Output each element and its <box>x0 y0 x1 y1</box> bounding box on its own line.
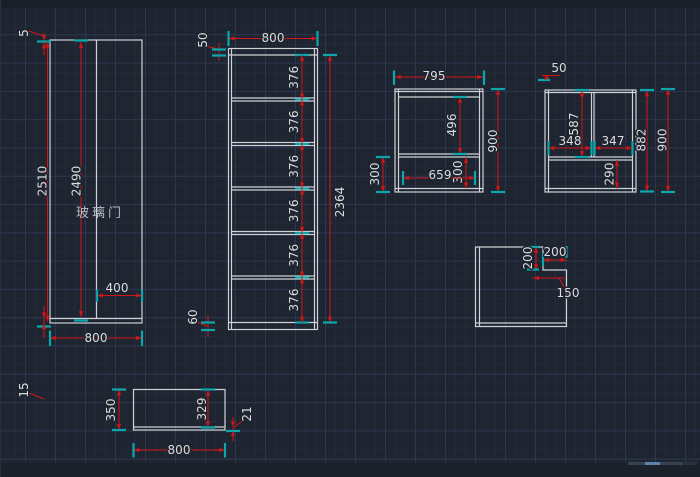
upper-height-dim-text[interactable]: 587 <box>567 113 581 136</box>
width-dim-text[interactable]: 800 <box>262 31 285 45</box>
bottom-gap-dim-text[interactable]: 15 <box>17 382 31 397</box>
cabinet-front-view[interactable]: 376 376 376 376 376 376 2364 800 50 60 <box>186 31 347 337</box>
door-width-dim-text[interactable]: 400 <box>106 281 129 295</box>
right-width-dim-text[interactable]: 347 <box>602 134 625 148</box>
height-dim-text[interactable]: 900 <box>656 129 670 152</box>
panel-outline[interactable] <box>134 390 226 431</box>
width-dim-text[interactable]: 800 <box>168 443 191 457</box>
side-view-b[interactable]: 50 587 348 347 882 900 290 <box>538 61 675 192</box>
inner-height-dim-text[interactable]: 882 <box>635 129 649 152</box>
height-dim-text[interactable]: 900 <box>486 130 500 153</box>
top-panel-dim-text[interactable]: 50 <box>196 32 210 47</box>
depth-dim-text[interactable]: 350 <box>104 399 118 422</box>
left-height-dim-text[interactable]: 300 <box>368 163 382 186</box>
glass-door-front-view[interactable]: 5 2510 2490 玻璃门 400 15 800 <box>17 29 142 399</box>
left-width-dim-text[interactable]: 348 <box>559 134 582 148</box>
leader-line[interactable] <box>29 31 44 36</box>
notch-width-dim-text[interactable]: 200 <box>544 245 567 259</box>
section-dim-text[interactable]: 376 <box>287 155 301 178</box>
lower-height-dim-text[interactable]: 300 <box>451 161 465 184</box>
cad-canvas[interactable]: 5 2510 2490 玻璃门 400 15 800 <box>0 0 700 477</box>
inner-depth-dim-text[interactable]: 329 <box>195 398 209 421</box>
top-panel-view[interactable]: 350 329 21 800 <box>104 390 254 458</box>
arrowhead <box>42 43 46 48</box>
width-dim-text[interactable]: 800 <box>85 331 108 345</box>
offset-dim-text[interactable]: 150 <box>557 286 580 300</box>
inner-height-dim-text[interactable]: 2490 <box>70 166 84 197</box>
drawing-layer: 5 2510 2490 玻璃门 400 15 800 <box>0 0 700 477</box>
total-height-dim-text[interactable]: 2364 <box>333 187 347 218</box>
top-gap-dim-text[interactable]: 5 <box>17 29 31 37</box>
section-dim-text[interactable]: 376 <box>287 244 301 267</box>
top-dim-text[interactable]: 50 <box>551 61 566 75</box>
section-dim-text[interactable]: 376 <box>287 66 301 89</box>
lower-height-dim-text[interactable]: 290 <box>603 163 617 186</box>
section-dim-text[interactable]: 376 <box>287 289 301 312</box>
arrowhead <box>42 35 46 40</box>
notch-depth-dim-text[interactable]: 200 <box>521 247 535 270</box>
section-dim-text[interactable]: 376 <box>287 199 301 222</box>
side-view-a[interactable]: 795 900 496 300 659 300 <box>368 69 505 192</box>
glass-door-label[interactable]: 玻璃门 <box>76 206 124 221</box>
overall-height-dim-text[interactable]: 2510 <box>36 166 50 197</box>
leader-line[interactable] <box>29 393 44 399</box>
upper-height-dim-text[interactable]: 496 <box>445 114 459 137</box>
arrowhead <box>231 422 235 427</box>
thickness-dim-text[interactable]: 21 <box>240 406 254 421</box>
width-dim-text[interactable]: 795 <box>423 69 446 83</box>
arrowhead <box>42 313 46 318</box>
bottom-panel-dim-text[interactable]: 60 <box>186 309 200 324</box>
notched-panel-view[interactable]: 200 200 150 <box>476 245 580 327</box>
inner-width-dim-text[interactable]: 659 <box>429 168 452 182</box>
section-dim-text[interactable]: 376 <box>287 110 301 133</box>
